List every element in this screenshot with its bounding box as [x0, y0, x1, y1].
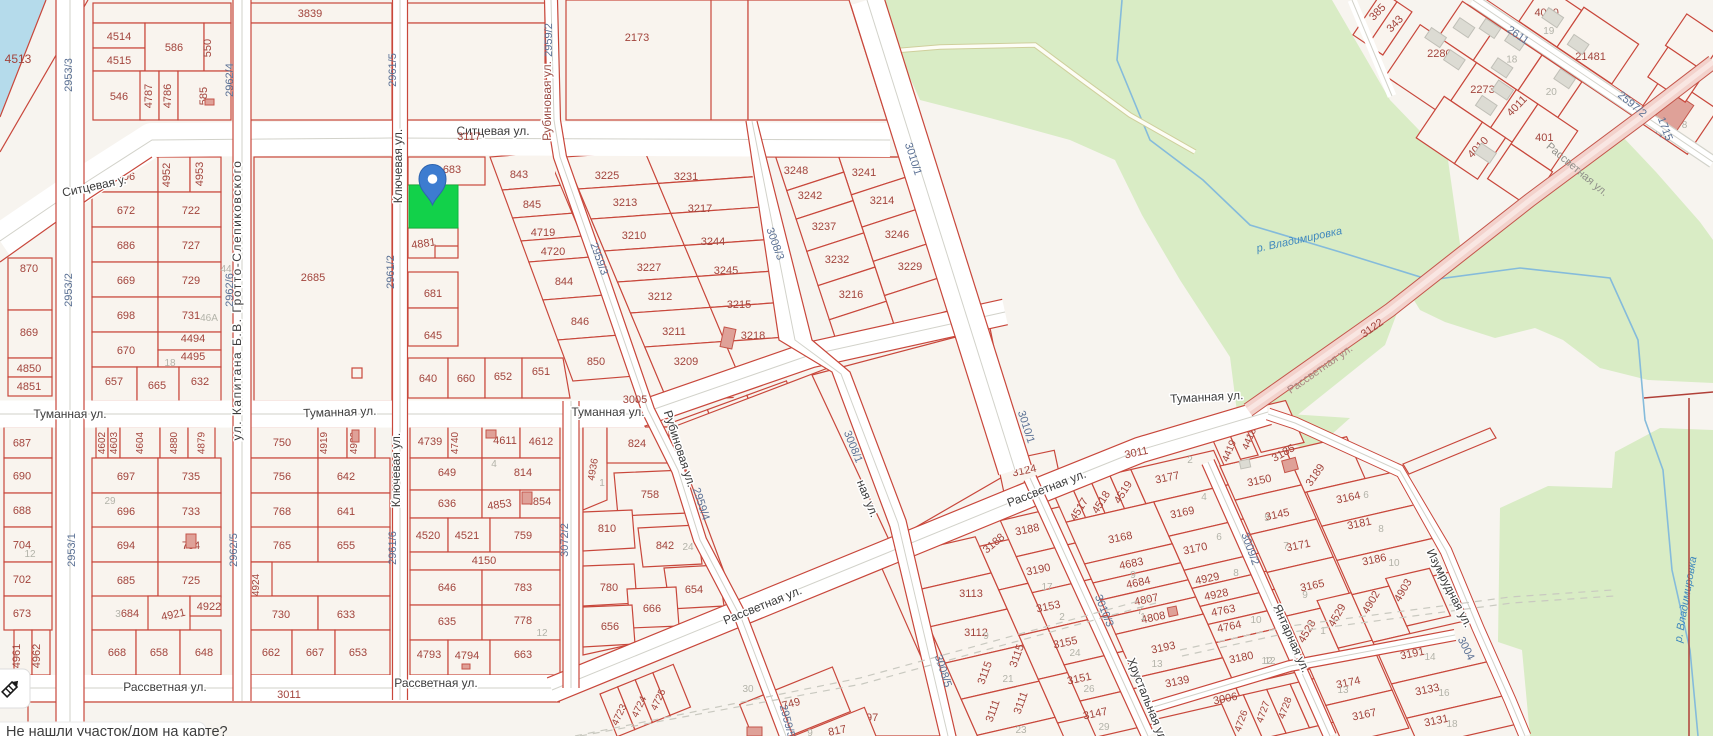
svg-text:688: 688: [13, 505, 31, 517]
svg-text:765: 765: [273, 540, 291, 552]
svg-text:4520: 4520: [416, 530, 440, 542]
svg-text:2: 2: [1059, 612, 1065, 623]
svg-text:667: 667: [306, 647, 324, 659]
svg-text:46А: 46А: [200, 313, 218, 324]
svg-text:778: 778: [514, 615, 532, 627]
svg-text:722: 722: [182, 205, 200, 217]
svg-text:4739: 4739: [418, 436, 442, 448]
svg-text:4604: 4604: [135, 431, 146, 454]
svg-text:690: 690: [13, 471, 31, 483]
svg-text:649: 649: [438, 467, 456, 479]
svg-text:780: 780: [600, 582, 618, 594]
svg-text:758: 758: [641, 489, 659, 501]
svg-text:4603: 4603: [109, 431, 120, 454]
svg-text:733: 733: [182, 506, 200, 518]
svg-text:641: 641: [337, 506, 355, 518]
svg-text:3839: 3839: [298, 8, 322, 20]
svg-text:810: 810: [598, 523, 616, 535]
svg-text:731: 731: [182, 310, 200, 322]
svg-text:648: 648: [195, 647, 213, 659]
svg-text:19: 19: [1543, 26, 1555, 37]
svg-text:4787: 4787: [143, 84, 155, 108]
svg-text:4962: 4962: [31, 644, 43, 668]
svg-text:7: 7: [1283, 541, 1289, 552]
svg-text:663: 663: [514, 649, 532, 661]
svg-text:3005: 3005: [623, 394, 647, 406]
svg-text:4495: 4495: [181, 351, 205, 363]
svg-text:3242: 3242: [798, 190, 822, 202]
svg-text:686: 686: [117, 240, 135, 252]
svg-text:3218: 3218: [741, 330, 765, 342]
svg-text:4794: 4794: [455, 650, 479, 662]
svg-text:23: 23: [1015, 725, 1027, 736]
svg-text:632: 632: [191, 376, 209, 388]
svg-text:3232: 3232: [825, 254, 849, 266]
svg-text:658: 658: [150, 647, 168, 659]
svg-text:10: 10: [1250, 615, 1262, 626]
svg-text:636: 636: [438, 498, 456, 510]
svg-text:3248: 3248: [784, 165, 808, 177]
svg-text:4793: 4793: [417, 649, 441, 661]
svg-text:4924: 4924: [251, 573, 262, 596]
svg-text:3215: 3215: [727, 299, 751, 311]
svg-text:3225: 3225: [595, 170, 619, 182]
svg-text:9: 9: [807, 728, 813, 736]
svg-text:Туманная ул.: Туманная ул.: [571, 405, 644, 419]
svg-text:756: 756: [273, 471, 291, 483]
svg-text:730: 730: [272, 609, 290, 621]
svg-text:2961/2: 2961/2: [385, 255, 397, 289]
svg-text:4611: 4611: [493, 435, 517, 447]
svg-text:668: 668: [108, 647, 126, 659]
svg-text:3229: 3229: [898, 261, 922, 273]
svg-text:12: 12: [24, 549, 36, 560]
svg-text:3: 3: [115, 609, 121, 620]
svg-text:5: 5: [1264, 513, 1270, 524]
svg-text:3211: 3211: [662, 326, 686, 338]
svg-text:4961: 4961: [11, 644, 23, 668]
svg-text:26: 26: [1083, 684, 1095, 695]
svg-text:3213: 3213: [613, 197, 637, 209]
svg-text:2173: 2173: [625, 32, 649, 44]
svg-text:846: 846: [571, 316, 589, 328]
svg-text:3209: 3209: [674, 356, 698, 368]
svg-text:768: 768: [273, 506, 291, 518]
svg-text:Туманная ул.: Туманная ул.: [303, 404, 377, 421]
svg-text:24: 24: [1069, 648, 1081, 659]
svg-text:1: 1: [599, 478, 605, 489]
svg-text:727: 727: [182, 240, 200, 252]
svg-text:750: 750: [273, 437, 291, 449]
svg-text:843: 843: [510, 169, 528, 181]
svg-text:698: 698: [117, 310, 135, 322]
svg-text:4880: 4880: [169, 431, 180, 454]
svg-text:4922: 4922: [197, 601, 221, 613]
svg-text:4740: 4740: [450, 431, 461, 454]
svg-text:2: 2: [1187, 455, 1193, 466]
svg-text:18: 18: [1446, 719, 1458, 730]
svg-text:20: 20: [1546, 87, 1558, 98]
svg-text:635: 635: [438, 616, 456, 628]
svg-text:654: 654: [685, 584, 703, 596]
svg-text:697: 697: [117, 471, 135, 483]
svg-text:546: 546: [110, 91, 128, 103]
svg-text:673: 673: [13, 608, 31, 620]
svg-text:4513: 4513: [5, 52, 32, 66]
svg-text:9: 9: [983, 631, 989, 642]
svg-text:725: 725: [182, 575, 200, 587]
svg-text:665: 665: [148, 380, 166, 392]
svg-text:4720: 4720: [541, 246, 565, 258]
svg-text:9: 9: [1302, 590, 1308, 601]
svg-text:660: 660: [457, 373, 475, 385]
svg-text:4: 4: [491, 459, 497, 470]
svg-text:4515: 4515: [107, 55, 131, 67]
svg-text:3241: 3241: [852, 167, 876, 179]
svg-text:4850: 4850: [17, 363, 41, 375]
svg-text:3117: 3117: [457, 131, 481, 143]
svg-text:2961/6: 2961/6: [387, 531, 399, 565]
svg-text:4521: 4521: [455, 530, 479, 542]
svg-text:3216: 3216: [839, 289, 863, 301]
svg-text:Туманная ул.: Туманная ул.: [33, 407, 106, 421]
svg-text:2685: 2685: [301, 272, 325, 284]
svg-text:3237: 3237: [812, 221, 836, 233]
svg-text:Ключевая ул.: Ключевая ул.: [389, 433, 403, 507]
svg-text:3011: 3011: [277, 689, 301, 701]
svg-text:685: 685: [117, 575, 135, 587]
svg-text:3212: 3212: [648, 291, 672, 303]
svg-text:8: 8: [1378, 524, 1384, 535]
svg-text:653: 653: [349, 647, 367, 659]
svg-text:842: 842: [656, 540, 674, 552]
svg-text:4952: 4952: [161, 163, 173, 187]
svg-text:646: 646: [438, 582, 456, 594]
svg-text:2961/5: 2961/5: [387, 53, 399, 87]
svg-text:652: 652: [494, 371, 512, 383]
svg-text:783: 783: [514, 582, 532, 594]
svg-text:14: 14: [1424, 652, 1436, 663]
svg-text:4919: 4919: [319, 431, 330, 454]
svg-text:2962/6: 2962/6: [224, 273, 236, 307]
svg-text:29: 29: [104, 496, 116, 507]
svg-text:586: 586: [165, 42, 183, 54]
svg-text:6: 6: [1363, 490, 1369, 501]
svg-text:4879: 4879: [197, 431, 208, 454]
svg-text:670: 670: [117, 345, 135, 357]
svg-text:3244: 3244: [701, 236, 725, 248]
svg-text:681: 681: [424, 288, 442, 300]
svg-text:Не нашли участок/дом на карте?: Не нашли участок/дом на карте?: [6, 724, 228, 736]
svg-text:814: 814: [514, 467, 532, 479]
svg-text:642: 642: [337, 471, 355, 483]
svg-text:655: 655: [337, 540, 355, 552]
svg-text:3113: 3113: [959, 588, 983, 600]
svg-text:8: 8: [1233, 568, 1239, 579]
svg-text:845: 845: [523, 199, 541, 211]
svg-text:4494: 4494: [181, 333, 205, 345]
svg-text:729: 729: [182, 275, 200, 287]
svg-text:16: 16: [1438, 688, 1450, 699]
svg-text:2953/1: 2953/1: [66, 533, 78, 567]
svg-text:3246: 3246: [885, 229, 909, 241]
svg-text:Рассветная ул.: Рассветная ул.: [394, 676, 478, 690]
svg-text:3227: 3227: [637, 262, 661, 274]
svg-text:2953/2: 2953/2: [63, 273, 75, 307]
svg-text:17: 17: [1041, 582, 1053, 593]
svg-text:29: 29: [1098, 722, 1110, 733]
svg-text:633: 633: [337, 609, 355, 621]
svg-text:10: 10: [1388, 558, 1400, 569]
svg-text:844: 844: [555, 276, 573, 288]
svg-text:869: 869: [20, 327, 38, 339]
svg-text:30: 30: [742, 684, 754, 695]
svg-text:759: 759: [514, 530, 532, 542]
svg-text:550: 550: [202, 39, 214, 57]
svg-text:9: 9: [1130, 570, 1136, 581]
svg-text:3217: 3217: [688, 203, 712, 215]
svg-text:24: 24: [682, 542, 694, 553]
svg-text:3072/2: 3072/2: [559, 523, 571, 557]
svg-text:3245: 3245: [714, 265, 738, 277]
svg-text:702: 702: [13, 574, 31, 586]
svg-text:672: 672: [117, 205, 135, 217]
svg-text:13: 13: [1337, 685, 1349, 696]
svg-text:18: 18: [164, 358, 176, 369]
svg-text:4612: 4612: [529, 436, 553, 448]
svg-text:4851: 4851: [17, 381, 41, 393]
svg-text:18: 18: [1506, 54, 1518, 65]
svg-text:2953/3: 2953/3: [63, 58, 75, 92]
svg-text:696: 696: [117, 506, 135, 518]
svg-text:4786: 4786: [162, 84, 174, 108]
svg-text:4514: 4514: [107, 31, 131, 43]
svg-text:2959/2: 2959/2: [543, 23, 555, 57]
svg-text:694: 694: [117, 540, 135, 552]
svg-text:4: 4: [1201, 492, 1207, 503]
svg-text:2962/4: 2962/4: [224, 63, 236, 97]
svg-text:1: 1: [1140, 612, 1146, 623]
svg-text:666: 666: [643, 603, 661, 615]
svg-text:21: 21: [1002, 674, 1014, 685]
svg-text:684: 684: [121, 608, 139, 620]
svg-text:2962/5: 2962/5: [228, 533, 240, 567]
svg-text:645: 645: [424, 330, 442, 342]
svg-text:Рубиновая ул.: Рубиновая ул.: [540, 61, 554, 141]
svg-text:4953: 4953: [194, 162, 206, 186]
svg-text:4602: 4602: [97, 431, 108, 454]
svg-text:657: 657: [105, 376, 123, 388]
svg-text:870: 870: [20, 263, 38, 275]
svg-text:2273: 2273: [1470, 84, 1494, 96]
svg-text:13: 13: [1151, 659, 1163, 670]
svg-text:3231: 3231: [674, 171, 698, 183]
svg-text:656: 656: [601, 621, 619, 633]
svg-text:4150: 4150: [472, 555, 496, 567]
svg-text:735: 735: [182, 471, 200, 483]
svg-text:651: 651: [532, 366, 550, 378]
svg-text:687: 687: [13, 438, 31, 450]
svg-text:850: 850: [587, 356, 605, 368]
svg-text:Ключевая ул.: Ключевая ул.: [391, 129, 405, 203]
svg-text:640: 640: [419, 373, 437, 385]
svg-text:Рассветная ул.: Рассветная ул.: [123, 680, 207, 694]
svg-text:12: 12: [536, 628, 548, 639]
svg-text:669: 669: [117, 275, 135, 287]
svg-text:662: 662: [262, 647, 280, 659]
svg-text:3210: 3210: [622, 230, 646, 242]
svg-text:4719: 4719: [531, 227, 555, 239]
svg-text:824: 824: [628, 438, 646, 450]
svg-text:3214: 3214: [870, 195, 894, 207]
svg-text:6: 6: [1216, 532, 1222, 543]
